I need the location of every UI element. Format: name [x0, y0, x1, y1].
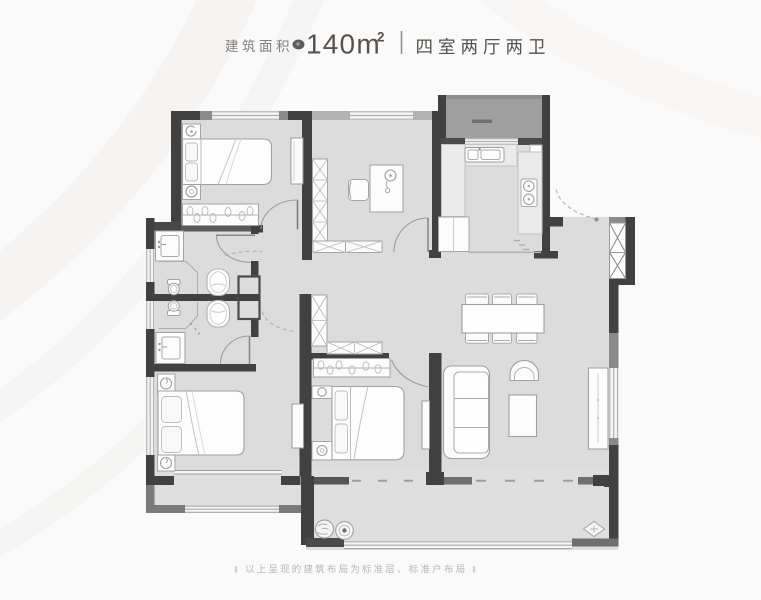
svg-text:建筑面积: 建筑面积	[225, 39, 293, 54]
svg-text:2: 2	[377, 30, 385, 45]
svg-text:140m: 140m	[306, 29, 381, 60]
svg-text:‖ 以上呈现的建筑布局为标准层、标准户布局 ‖: ‖ 以上呈现的建筑布局为标准层、标准户布局 ‖	[234, 564, 478, 576]
svg-text:四室两厅两卫: 四室两厅两卫	[416, 37, 551, 57]
